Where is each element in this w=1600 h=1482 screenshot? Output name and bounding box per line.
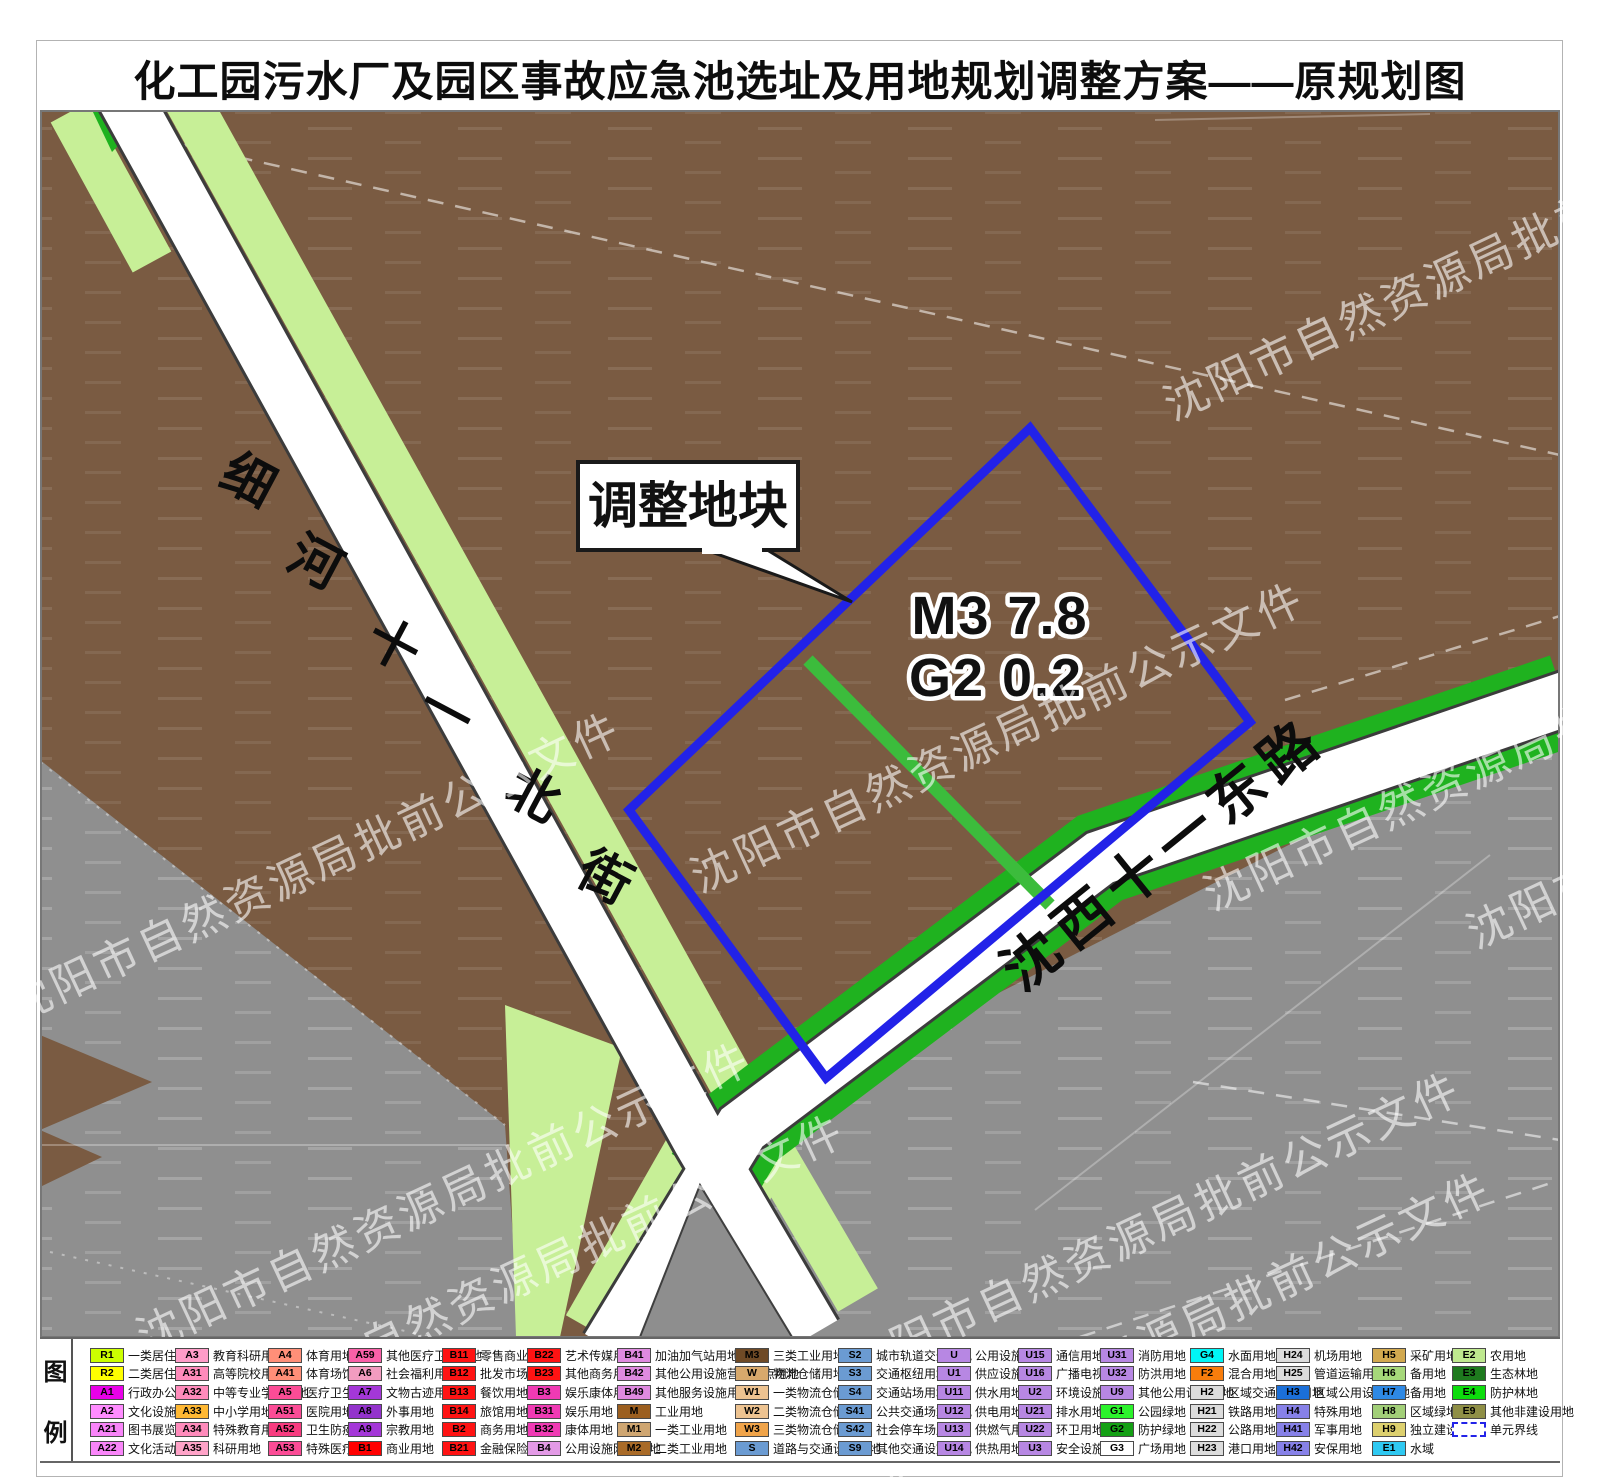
legend-swatch: S3 — [838, 1366, 872, 1381]
legend-swatch: B42 — [617, 1366, 651, 1381]
legend-swatch: A59 — [348, 1348, 382, 1363]
legend-label: 备用地 — [1410, 1384, 1446, 1401]
legend-swatch: H41 — [1276, 1422, 1310, 1437]
legend-label: 医院用地 — [306, 1403, 354, 1420]
legend-swatch: U9 — [1100, 1385, 1134, 1400]
legend-swatch: F2 — [1190, 1366, 1224, 1381]
legend-label: 防洪用地 — [1138, 1365, 1186, 1382]
legend-label: 科研用地 — [213, 1440, 261, 1457]
legend-label: 防护绿地 — [1138, 1421, 1186, 1438]
legend-swatch: A51 — [268, 1404, 302, 1419]
legend-item: E4防护林地 — [1452, 1383, 1574, 1402]
legend-swatch: E1 — [1372, 1441, 1406, 1456]
legend-swatch: B2 — [442, 1422, 476, 1437]
legend-label: 体育用地 — [306, 1347, 354, 1364]
legend-swatch: H8 — [1372, 1404, 1406, 1419]
legend-label: 公路用地 — [1228, 1421, 1276, 1438]
legend-label: 物流仓储用地 — [773, 1365, 845, 1382]
legend-swatch: S2 — [838, 1348, 872, 1363]
legend-label: 军事用地 — [1314, 1421, 1362, 1438]
legend-swatch: H6 — [1372, 1366, 1406, 1381]
legend-label: 特殊用地 — [1314, 1403, 1362, 1420]
legend-swatch: S42 — [838, 1422, 872, 1437]
legend-label: 工业用地 — [655, 1403, 703, 1420]
legend-label: 外事用地 — [386, 1403, 434, 1420]
legend-swatch: S4 — [838, 1385, 872, 1400]
legend-label: 二类工业用地 — [655, 1440, 727, 1457]
legend-item: E1水域 — [1372, 1439, 1482, 1458]
legend-label: 消防用地 — [1138, 1347, 1186, 1364]
plot-label-m3: M3 7.8 — [911, 586, 1088, 646]
map-area: 调整地块 M3 7.8 G2 0.2 细河十一北街 沈西十一东路 — [0, 0, 1600, 1482]
legend-label: 备用地 — [1410, 1365, 1446, 1382]
legend-swatch: A3 — [175, 1348, 209, 1363]
legend-label: 商务用地 — [480, 1421, 528, 1438]
legend-swatch: B12 — [442, 1366, 476, 1381]
legend-label: 加油加气站用地 — [655, 1347, 739, 1364]
legend-label: 港口用地 — [1228, 1440, 1276, 1457]
legend-swatch: U31 — [1100, 1348, 1134, 1363]
legend-swatch: A6 — [348, 1366, 382, 1381]
legend-swatch: A31 — [175, 1366, 209, 1381]
legend-swatch: H25 — [1276, 1366, 1310, 1381]
legend-swatch: W1 — [735, 1385, 769, 1400]
legend-swatch: U — [937, 1348, 971, 1363]
legend-swatch: M1 — [617, 1422, 651, 1437]
legend-swatch: G4 — [1190, 1348, 1224, 1363]
legend-swatch: H24 — [1276, 1348, 1310, 1363]
legend-swatch: A41 — [268, 1366, 302, 1381]
legend-swatch: A9 — [348, 1422, 382, 1437]
legend-swatch: B22 — [527, 1348, 561, 1363]
legend-label: 生态林地 — [1490, 1365, 1538, 1382]
callout-tail-mask — [702, 546, 762, 554]
legend-swatch: B41 — [617, 1348, 651, 1363]
legend-item: E9其他非建设用地 — [1452, 1402, 1574, 1421]
legend-swatch: H2 — [1190, 1385, 1224, 1400]
legend-swatch: E9 — [1452, 1404, 1486, 1419]
legend-swatch: A32 — [175, 1385, 209, 1400]
legend-label: 广场用地 — [1138, 1440, 1186, 1457]
legend-swatch: U12 — [937, 1404, 971, 1419]
legend-swatch: H7 — [1372, 1385, 1406, 1400]
legend-label: 中小学用地 — [213, 1403, 273, 1420]
legend-swatch: A2 — [90, 1404, 124, 1419]
legend-swatch: E3 — [1452, 1366, 1486, 1381]
legend-label: 防护林地 — [1490, 1384, 1538, 1401]
legend-label: 公园绿地 — [1138, 1403, 1186, 1420]
legend-swatch: W3 — [735, 1422, 769, 1437]
legend-label: 通信用地 — [1056, 1347, 1104, 1364]
legend-swatch: U14 — [937, 1441, 971, 1456]
legend-swatch: U22 — [1018, 1422, 1052, 1437]
legend-swatch: M — [617, 1404, 651, 1419]
legend-swatch: U3 — [1018, 1441, 1052, 1456]
legend-label: 农用地 — [1490, 1347, 1526, 1364]
legend-swatch: E2 — [1452, 1348, 1486, 1363]
legend-swatch: U1 — [937, 1366, 971, 1381]
legend-label: 区域绿地 — [1410, 1403, 1458, 1420]
legend-label: 水面用地 — [1228, 1347, 1276, 1364]
legend-swatch: S — [735, 1441, 769, 1456]
legend-label: 铁路用地 — [1228, 1403, 1276, 1420]
legend-swatch: B3 — [527, 1385, 561, 1400]
legend-swatch: B1 — [348, 1441, 382, 1456]
legend-swatch: B14 — [442, 1404, 476, 1419]
legend-label: 单元界线 — [1490, 1421, 1538, 1438]
legend-swatch: A21 — [90, 1422, 124, 1437]
legend-item: E2农用地 — [1452, 1346, 1574, 1365]
legend-swatch: B49 — [617, 1385, 651, 1400]
legend-swatch: G2 — [1100, 1422, 1134, 1437]
legend-swatch: U32 — [1100, 1366, 1134, 1381]
legend-swatch: A34 — [175, 1422, 209, 1437]
legend-column: E2农用地E3生态林地E4防护林地E9其他非建设用地单元界线 — [1452, 1346, 1574, 1439]
legend-swatch: R1 — [90, 1348, 124, 1363]
legend-label: 供热用地 — [975, 1440, 1023, 1457]
legend-label: 三类工业用地 — [773, 1347, 845, 1364]
legend-swatch: W2 — [735, 1404, 769, 1419]
legend-swatch: U21 — [1018, 1404, 1052, 1419]
legend-swatch: U2 — [1018, 1385, 1052, 1400]
legend-swatch: B32 — [527, 1422, 561, 1437]
legend-swatch: E4 — [1452, 1385, 1486, 1400]
legend-swatch: G3 — [1100, 1441, 1134, 1456]
legend-label: 排水用地 — [1056, 1403, 1104, 1420]
legend-swatch: A33 — [175, 1404, 209, 1419]
legend-item: 单元界线 — [1452, 1420, 1574, 1439]
legend-swatch — [1452, 1422, 1486, 1437]
legend-swatch: B21 — [442, 1441, 476, 1456]
legend-swatch: A52 — [268, 1422, 302, 1437]
legend-swatch: H23 — [1190, 1441, 1224, 1456]
legend-label: 娱乐用地 — [565, 1403, 613, 1420]
legend-label: 环卫用地 — [1056, 1421, 1104, 1438]
legend-swatch: G1 — [1100, 1404, 1134, 1419]
legend-label: 供水用地 — [975, 1384, 1023, 1401]
legend-swatch: A22 — [90, 1441, 124, 1456]
legend-swatch: U15 — [1018, 1348, 1052, 1363]
legend-swatch: A53 — [268, 1441, 302, 1456]
legend-swatch: H4 — [1276, 1404, 1310, 1419]
legend-swatch: H22 — [1190, 1422, 1224, 1437]
legend: 图 例 R1一类居住用地R2二类居住用地A1行政办公用地A2文化设施用地A21图… — [40, 1337, 1560, 1463]
legend-swatch: B31 — [527, 1404, 561, 1419]
legend-label: 一类工业用地 — [655, 1421, 727, 1438]
legend-swatch: H42 — [1276, 1441, 1310, 1456]
legend-swatch: B13 — [442, 1385, 476, 1400]
legend-swatch: S9 — [838, 1441, 872, 1456]
legend-swatch: S41 — [838, 1404, 872, 1419]
legend-swatch: A35 — [175, 1441, 209, 1456]
legend-label: 混合用地 — [1228, 1365, 1276, 1382]
legend-label: 水域 — [1410, 1440, 1434, 1457]
legend-swatch: B23 — [527, 1366, 561, 1381]
legend-label: 安保用地 — [1314, 1440, 1362, 1457]
legend-label: 机场用地 — [1314, 1347, 1362, 1364]
legend-swatch: A5 — [268, 1385, 302, 1400]
legend-grid: R1一类居住用地R2二类居住用地A1行政办公用地A2文化设施用地A21图书展览用… — [40, 1339, 1560, 1461]
legend-label: 旅馆用地 — [480, 1403, 528, 1420]
legend-swatch: U16 — [1018, 1366, 1052, 1381]
legend-swatch: A7 — [348, 1385, 382, 1400]
legend-swatch: A1 — [90, 1385, 124, 1400]
legend-swatch: A4 — [268, 1348, 302, 1363]
legend-swatch: H3 — [1276, 1385, 1310, 1400]
plot-label-g2: G2 0.2 — [909, 648, 1083, 708]
legend-swatch: A8 — [348, 1404, 382, 1419]
legend-swatch: H5 — [1372, 1348, 1406, 1363]
legend-label: 康体用地 — [565, 1421, 613, 1438]
legend-swatch: W — [735, 1366, 769, 1381]
legend-swatch: M3 — [735, 1348, 769, 1363]
legend-swatch: B4 — [527, 1441, 561, 1456]
legend-swatch: U11 — [937, 1385, 971, 1400]
map-canvas: 调整地块 M3 7.8 G2 0.2 细河十一北街 沈西十一东路 — [0, 0, 1600, 1482]
legend-swatch: H21 — [1190, 1404, 1224, 1419]
legend-item: E3生态林地 — [1452, 1365, 1574, 1384]
legend-label: 餐饮用地 — [480, 1384, 528, 1401]
legend-swatch: B11 — [442, 1348, 476, 1363]
callout-label: 调整地块 — [588, 478, 788, 534]
legend-swatch: H9 — [1372, 1422, 1406, 1437]
legend-swatch: R2 — [90, 1366, 124, 1381]
legend-label: 采矿用地 — [1410, 1347, 1458, 1364]
legend-swatch: U13 — [937, 1422, 971, 1437]
planning-map-page: 化工园污水厂及园区事故应急池选址及用地规划调整方案——原规划图 — [0, 0, 1600, 1482]
legend-label: 供电用地 — [975, 1403, 1023, 1420]
legend-swatch: M2 — [617, 1441, 651, 1456]
legend-label: 宗教用地 — [386, 1421, 434, 1438]
legend-label: 商业用地 — [386, 1440, 434, 1457]
legend-label: 其他非建设用地 — [1490, 1403, 1574, 1420]
